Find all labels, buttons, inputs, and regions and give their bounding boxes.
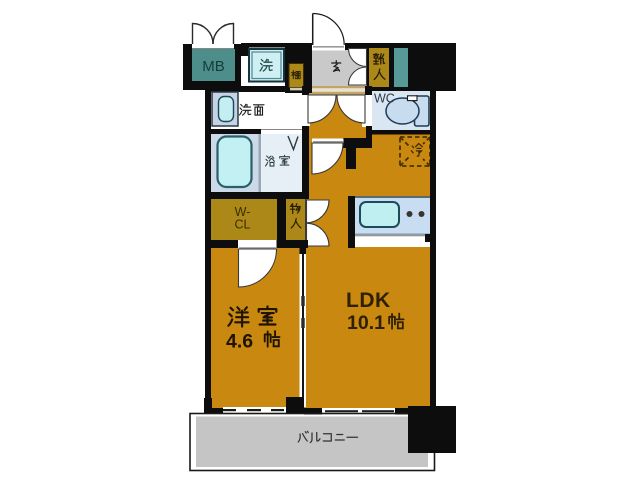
svg-text:10.1: 10.1 xyxy=(347,312,385,334)
svg-text:WC: WC xyxy=(374,92,395,106)
svg-text:LDK: LDK xyxy=(346,289,391,312)
svg-text:CL: CL xyxy=(235,218,251,232)
svg-text:MB: MB xyxy=(202,58,225,75)
svg-text:4.6: 4.6 xyxy=(226,331,253,353)
